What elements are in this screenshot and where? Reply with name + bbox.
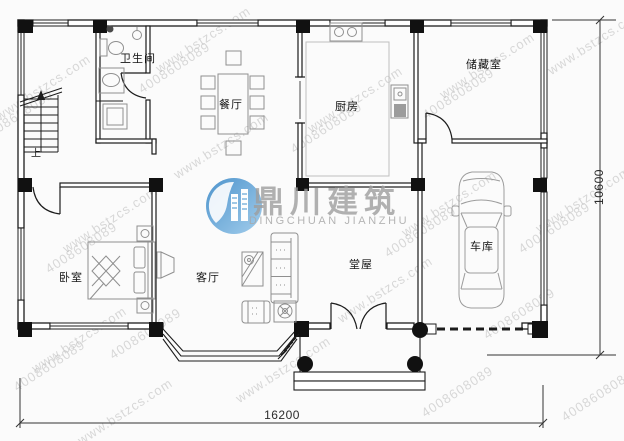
floor-plan: www.bstzcs.com 4008608089 www.bstzcs.com… [0,0,624,441]
room-label-living: 客厅 [196,269,220,285]
bedroom-furniture [88,226,155,313]
bathroom-fixtures [99,26,142,130]
tv-cabinet [157,252,161,278]
nightstand [137,226,153,241]
dimension-width-label: 16200 [264,408,300,422]
stair-up-label: 上 [31,145,41,160]
living-furniture [157,233,298,323]
nightstand [137,298,153,313]
dimension-height-label: 10600 [592,169,606,205]
room-label-bedroom: 卧室 [59,269,83,285]
floor-drain-icon [107,26,114,33]
room-label-bathroom: 卫生间 [120,50,156,66]
bay-window [163,329,297,361]
armchair [242,301,270,323]
room-label-kitchen: 厨房 [335,98,359,114]
tv [161,252,174,278]
brand-name-en: DINGCHUAN JIANZHU [249,215,409,227]
car-mirror [452,206,459,216]
room-label-hall: 堂屋 [349,256,373,272]
room-label-garage: 车库 [468,238,496,254]
toilet-tank [100,39,107,56]
shower-head-icon [133,31,142,40]
room-label-dining: 餐厅 [219,96,243,112]
sink-basin [103,74,120,87]
pillow [134,247,145,268]
porch [278,334,425,390]
car-mirror [504,206,511,216]
staircase [20,88,62,152]
room-label-storage: 储藏室 [466,56,502,72]
pillow [134,272,145,293]
